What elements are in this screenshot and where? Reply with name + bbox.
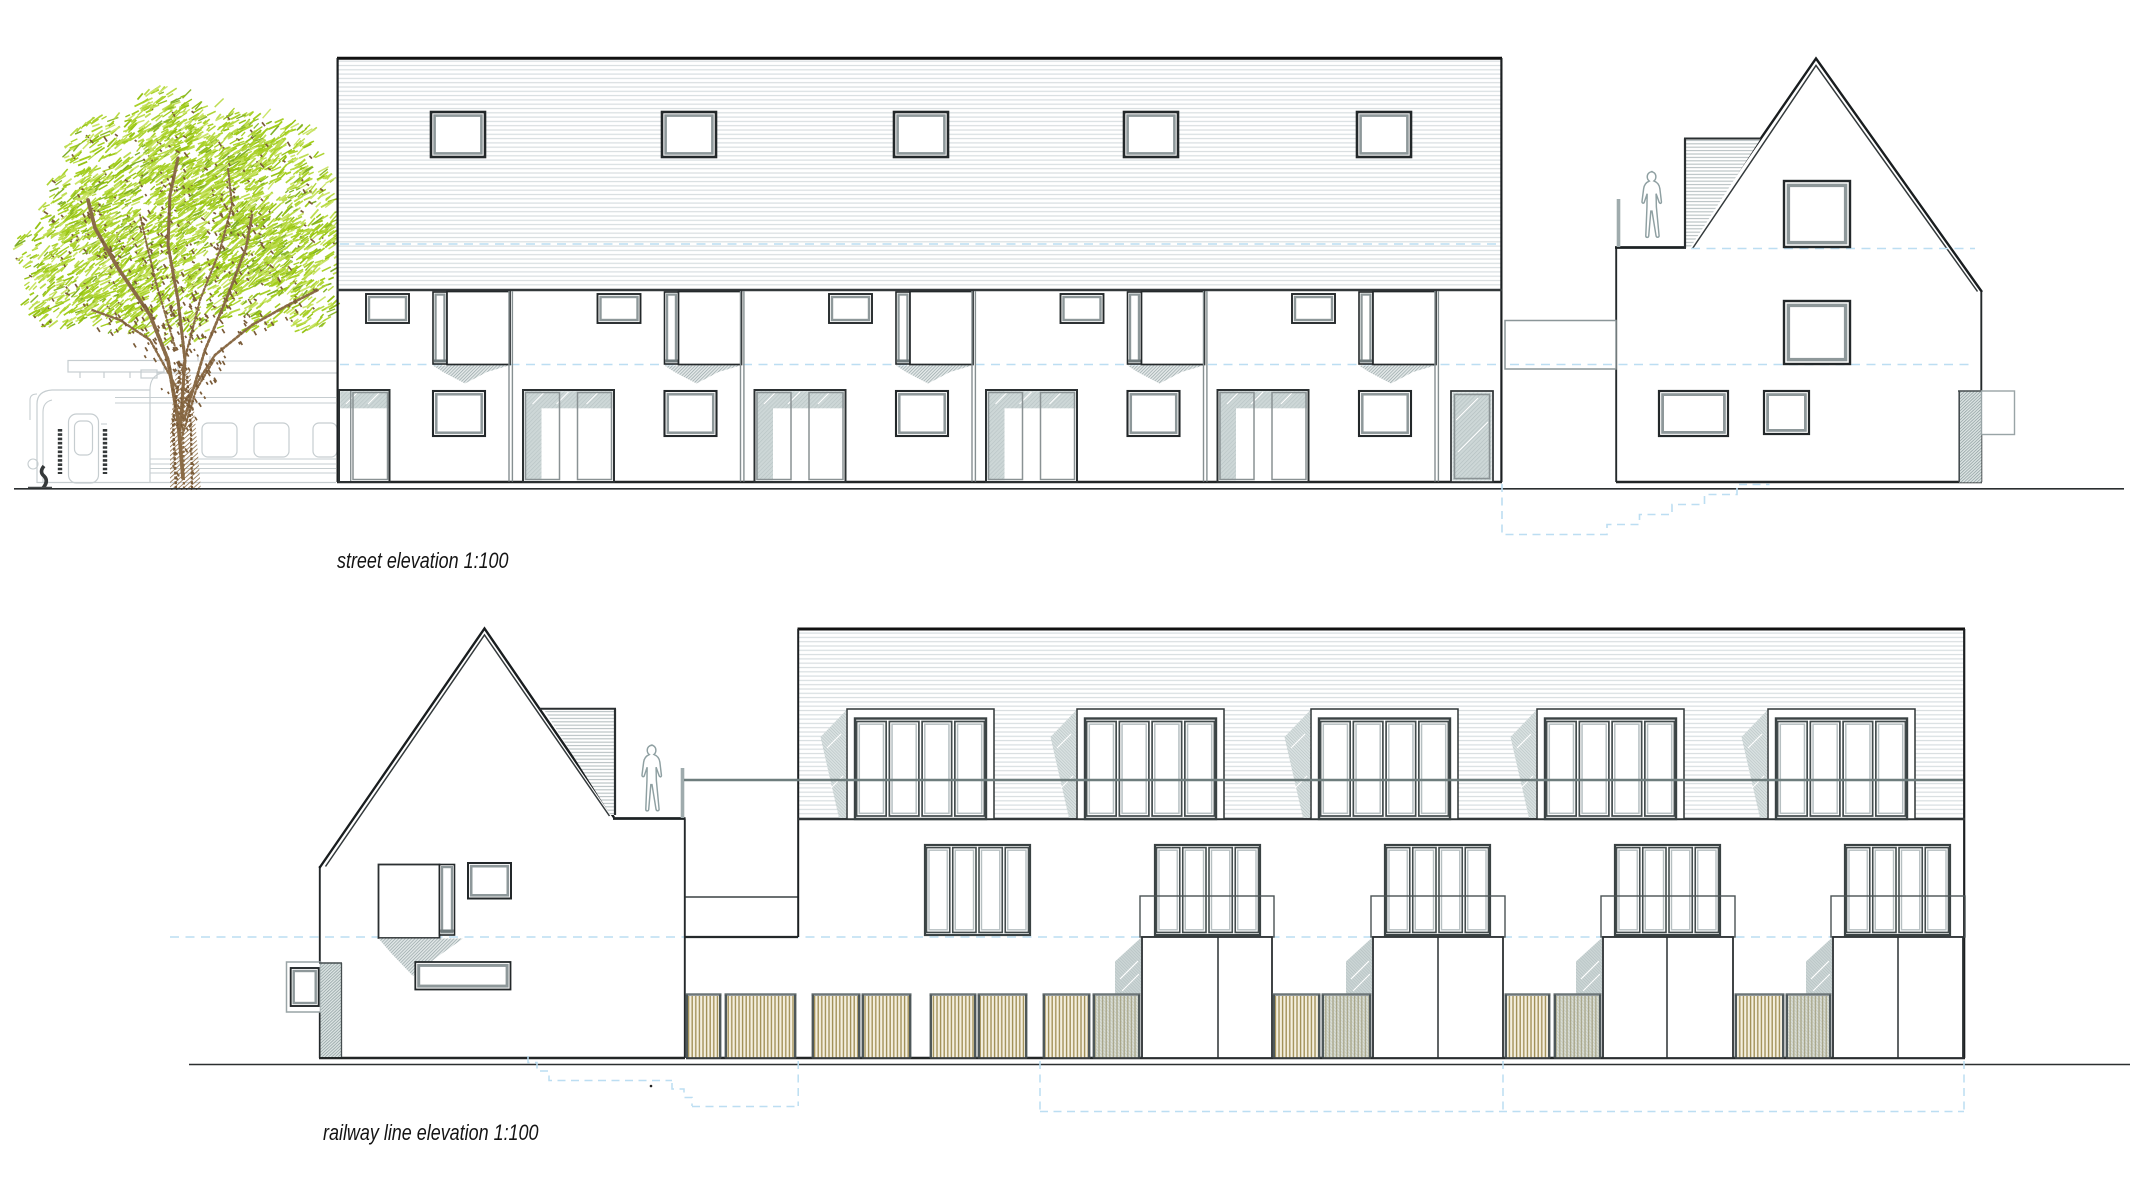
- svg-text:railway line elevation 1:100: railway line elevation 1:100: [323, 1120, 539, 1145]
- svg-text:street elevation 1:100: street elevation 1:100: [337, 548, 509, 573]
